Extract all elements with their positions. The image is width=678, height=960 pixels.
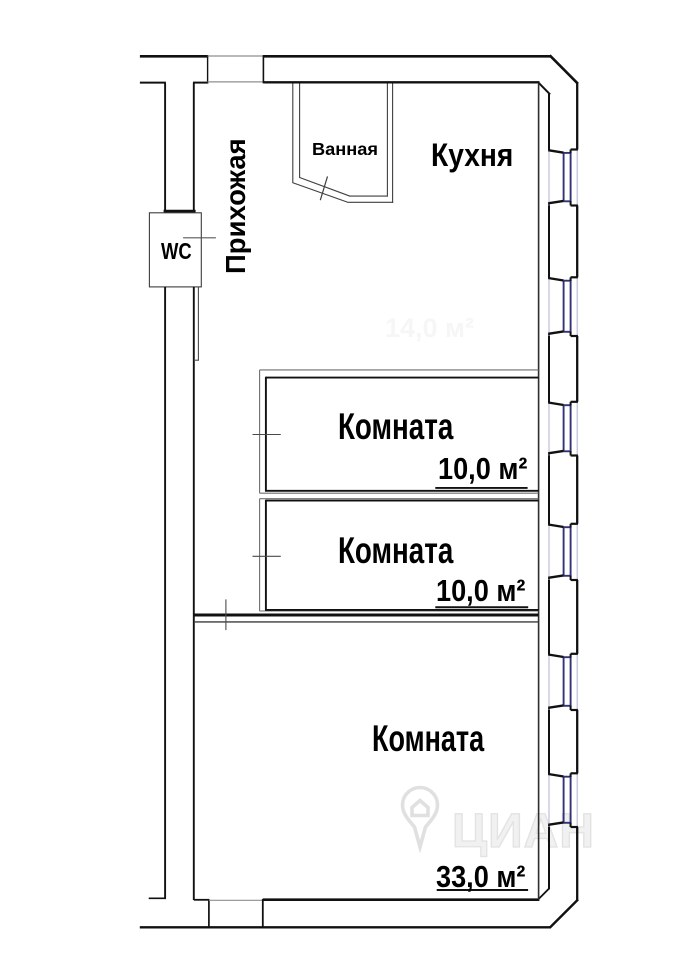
svg-text:ЦИАН: ЦИАН bbox=[452, 805, 595, 858]
svg-text:14,0 м²: 14,0 м² bbox=[385, 313, 474, 343]
